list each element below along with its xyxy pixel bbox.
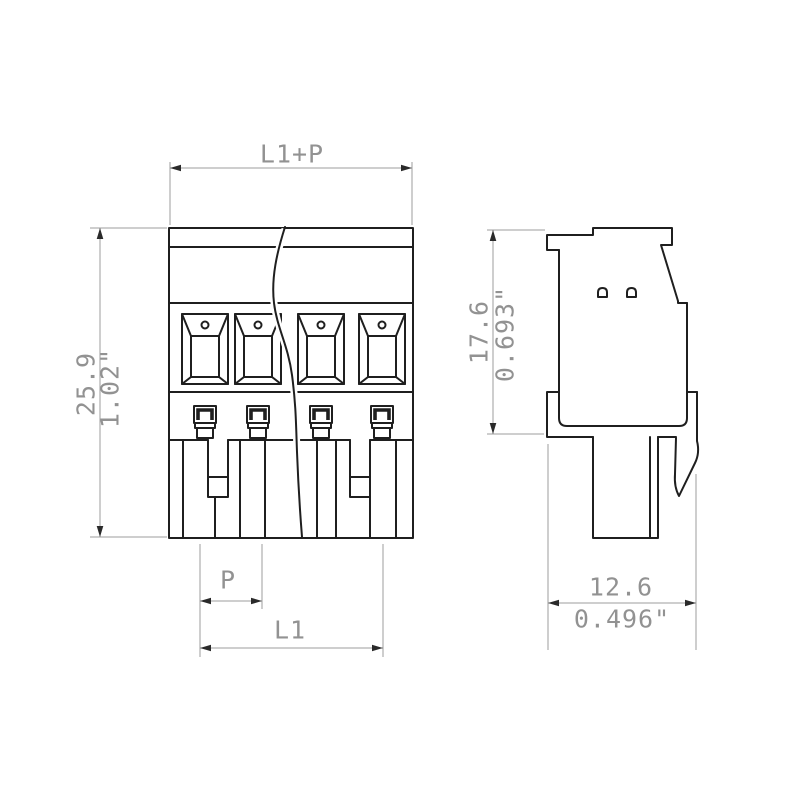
slot-walls	[208, 440, 370, 477]
window-inner	[244, 336, 272, 377]
arrow-l1p-right	[401, 165, 412, 172]
pin-base	[313, 428, 329, 438]
slot-latch-2	[350, 477, 370, 497]
dim-l1p-lines	[170, 162, 412, 225]
window-bevels	[182, 314, 228, 384]
side-flange	[547, 392, 697, 437]
slot-stems	[215, 497, 370, 537]
pin-cap-contact	[375, 410, 389, 420]
window-outer	[359, 314, 405, 384]
side-upper-outline	[547, 228, 687, 392]
arrow-l1p-left	[170, 165, 181, 172]
vent-slot-icon	[598, 288, 636, 297]
contact-pin-1	[194, 406, 216, 438]
screw-hole-icon	[255, 322, 262, 329]
arrow-height-bottom	[97, 526, 104, 537]
terminal-window-2	[235, 314, 281, 384]
terminal-window-3	[298, 314, 344, 384]
dim-label-length: L1	[274, 618, 306, 643]
front-lower-shroud	[183, 440, 396, 537]
dim-label-pitch: P	[220, 568, 236, 593]
arrow-height-top	[97, 228, 104, 239]
drawing-sheet: L1+P 25.9 1.02" P L1 17.6 0.693" 12.6 0.…	[0, 0, 800, 800]
arrow-side-height-bottom	[490, 423, 497, 434]
window-bevels	[235, 314, 281, 384]
window-outer	[298, 314, 344, 384]
pin-cap-contact	[251, 410, 265, 420]
dim-label-side-width-mm: 12.6	[589, 575, 653, 600]
side-channel	[559, 250, 687, 426]
window-bevels	[298, 314, 344, 384]
pin-cap-contact	[198, 410, 212, 420]
window-inner	[368, 336, 396, 377]
contact-pin-3	[310, 406, 332, 438]
window-inner	[307, 336, 335, 377]
arrow-length-left	[200, 645, 211, 652]
contact-pin-4	[371, 406, 393, 438]
dim-label-side-height-in: 0.693"	[493, 286, 518, 382]
arrow-length-right	[372, 645, 383, 652]
terminal-window-1	[182, 314, 228, 384]
side-view	[547, 228, 698, 538]
pin-base	[250, 428, 266, 438]
screw-hole-icon	[318, 322, 325, 329]
slot-latch-1	[208, 477, 228, 497]
side-plug	[593, 437, 658, 538]
window-inner	[191, 336, 219, 377]
arrow-pitch-right	[251, 598, 262, 605]
dim-label-overall-width: L1+P	[260, 142, 324, 167]
arrow-side-width-left	[548, 600, 559, 607]
screw-hole-icon	[202, 322, 209, 329]
terminal-window-4	[359, 314, 405, 384]
contact-pin-2	[247, 406, 269, 438]
pin-base	[197, 428, 213, 438]
arrow-side-height-top	[490, 230, 497, 241]
pin-cap-contact	[314, 410, 328, 420]
pin-base	[374, 428, 390, 438]
dim-label-height-in: 1.02"	[98, 348, 123, 428]
arrow-side-width-right	[685, 600, 696, 607]
dim-label-side-height-mm: 17.6	[467, 300, 492, 364]
dim-label-side-width-in: 0.496"	[574, 607, 670, 632]
arrow-pitch-left	[200, 598, 211, 605]
window-outer	[182, 314, 228, 384]
window-outer	[235, 314, 281, 384]
window-bevels	[359, 314, 405, 384]
screw-hole-icon	[379, 322, 386, 329]
